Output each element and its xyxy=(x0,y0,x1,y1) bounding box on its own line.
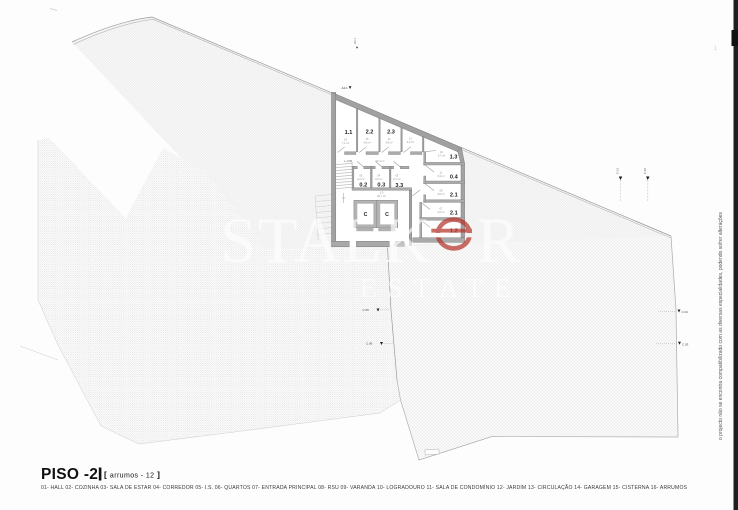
svg-text:C.02: C.02 xyxy=(643,168,647,174)
svg-text:STALK: STALK xyxy=(220,205,432,277)
svg-text:A4.1: A4.1 xyxy=(353,38,357,44)
svg-text:C.03: C.03 xyxy=(682,342,689,346)
svg-text:2.2: 2.2 xyxy=(366,129,374,135)
svg-text:3,7 m²: 3,7 m² xyxy=(438,154,445,158)
svg-text:C.04: C.04 xyxy=(682,310,689,314)
svg-text:3,9 m²: 3,9 m² xyxy=(385,141,392,145)
svg-text:4,0 m²: 4,0 m² xyxy=(407,140,414,144)
svg-text:PISO -2: PISO -2 xyxy=(41,466,98,483)
svg-text:⌀ -0,50: ⌀ -0,50 xyxy=(344,159,353,163)
svg-text:3.3: 3.3 xyxy=(395,183,403,189)
svg-text:A4.1: A4.1 xyxy=(342,86,349,90)
svg-text:2,2 m²: 2,2 m² xyxy=(357,177,364,181)
svg-text:7,1 m²: 7,1 m² xyxy=(342,141,349,145)
svg-text:2,2 m²: 2,2 m² xyxy=(375,177,382,181)
svg-text:0.2: 0.2 xyxy=(359,183,367,189)
svg-text:C.06: C.06 xyxy=(366,342,373,346)
svg-text:C.05: C.05 xyxy=(363,308,370,312)
svg-text:R: R xyxy=(477,205,521,277)
svg-text:1.1: 1.1 xyxy=(345,130,353,136)
svg-text:1.0: 1.0 xyxy=(380,191,384,195)
svg-text:20,7 m²: 20,7 m² xyxy=(377,194,386,198)
svg-text:2.3: 2.3 xyxy=(387,129,395,135)
svg-text:4,5 m²: 4,5 m² xyxy=(363,141,370,145)
svg-text:2,1 m²: 2,1 m² xyxy=(393,177,400,181)
svg-text:3,3 m²: 3,3 m² xyxy=(437,174,444,178)
svg-text:0.4: 0.4 xyxy=(450,174,459,180)
svg-text:4,6 m²: 4,6 m² xyxy=(437,210,444,214)
svg-text:4,6 m²: 4,6 m² xyxy=(437,192,444,196)
svg-text:o projecto não se encontra com: o projecto não se encontra compatibiliza… xyxy=(718,212,724,440)
svg-text:01- HALL 02- COZINHA 03- SALA: 01- HALL 02- COZINHA 03- SALA DE ESTAR 0… xyxy=(41,484,688,491)
svg-text:C.01: C.01 xyxy=(616,168,620,174)
svg-text:2.1: 2.1 xyxy=(450,211,458,217)
svg-text:ESTATE: ESTATE xyxy=(360,273,521,303)
svg-text:2.1: 2.1 xyxy=(450,192,458,198)
svg-text:1.3: 1.3 xyxy=(450,154,458,160)
svg-text:99,4 m²: 99,4 m² xyxy=(376,159,385,163)
svg-text:0.3: 0.3 xyxy=(377,183,385,189)
